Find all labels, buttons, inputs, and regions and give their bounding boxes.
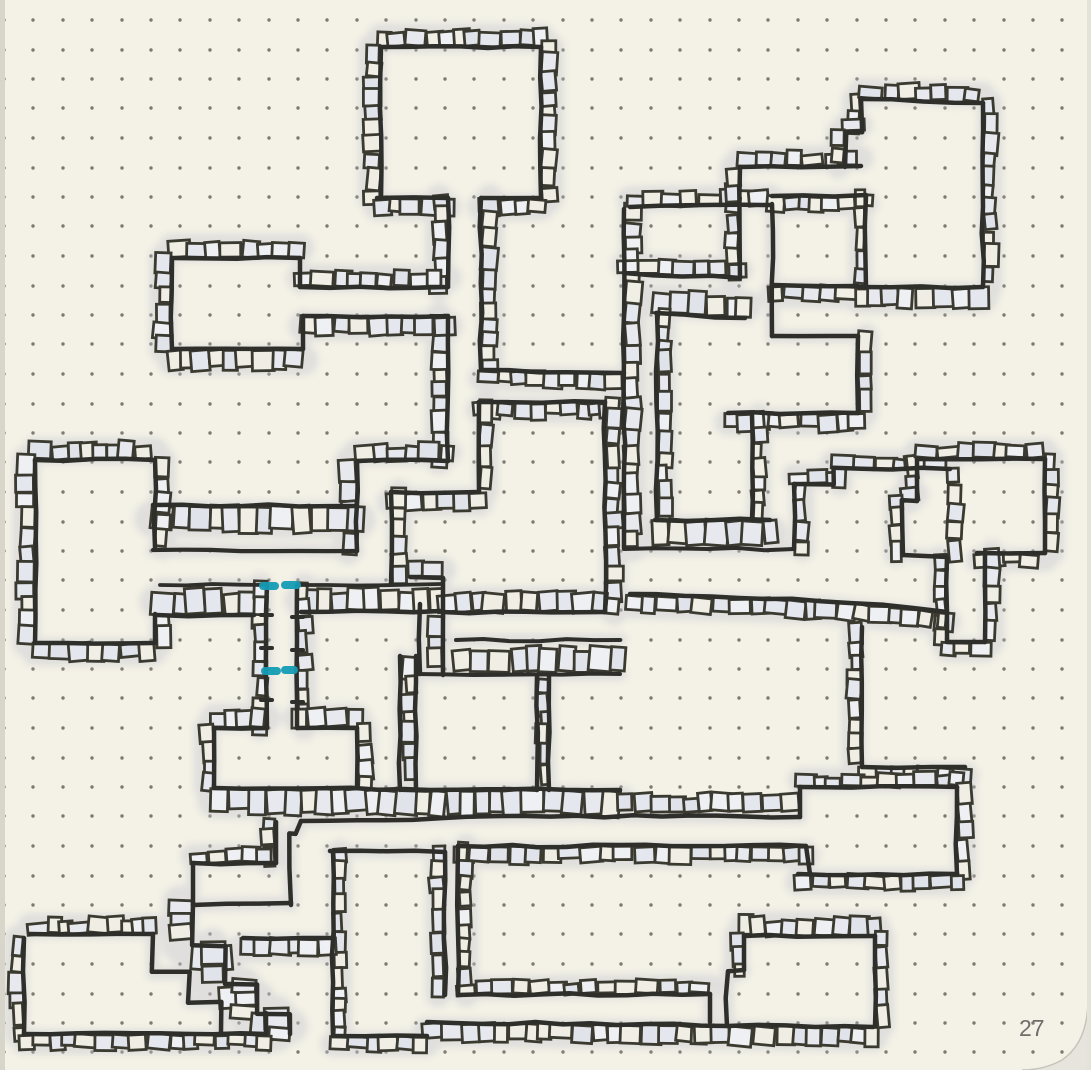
svg-text:27: 27 <box>1019 1015 1045 1041</box>
